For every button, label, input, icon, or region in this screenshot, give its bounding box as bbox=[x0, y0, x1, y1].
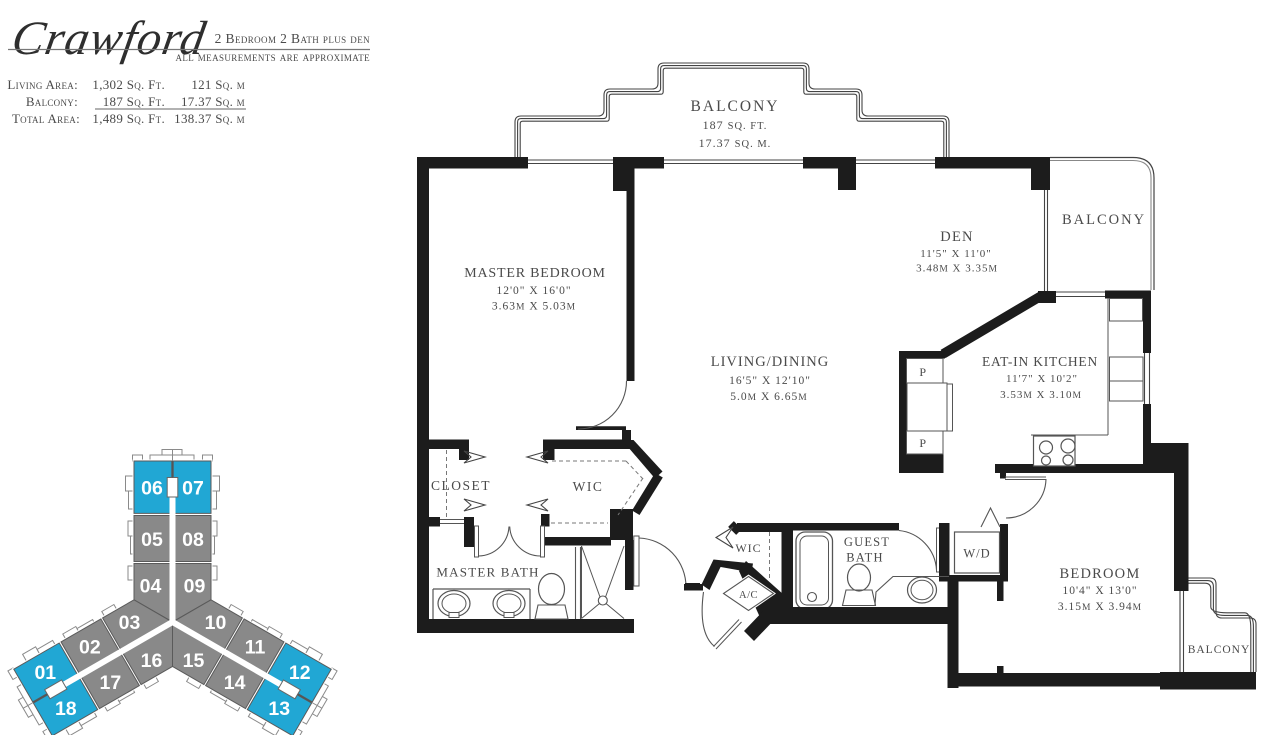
svg-text:BEDROOM: BEDROOM bbox=[1060, 566, 1141, 582]
svg-text:05: 05 bbox=[141, 529, 163, 551]
svg-text:1,489 Sq. Ft.: 1,489 Sq. Ft. bbox=[92, 111, 165, 126]
svg-text:1,302 Sq. Ft.: 1,302 Sq. Ft. bbox=[92, 77, 165, 92]
svg-text:BALCONY: BALCONY bbox=[1062, 212, 1146, 228]
svg-text:11'7" X 10'2": 11'7" X 10'2" bbox=[1006, 373, 1078, 385]
svg-text:17.37 SQ. M.: 17.37 SQ. M. bbox=[699, 136, 772, 150]
svg-text:17.37 Sq. m: 17.37 Sq. m bbox=[181, 94, 245, 109]
svg-text:13: 13 bbox=[268, 698, 290, 720]
svg-text:07: 07 bbox=[182, 478, 204, 500]
svg-text:15: 15 bbox=[183, 650, 205, 672]
svg-text:LIVING/DINING: LIVING/DINING bbox=[711, 354, 830, 370]
svg-text:BATH: BATH bbox=[846, 551, 883, 565]
svg-text:P: P bbox=[919, 365, 926, 379]
svg-text:3.48M X 3.35M: 3.48M X 3.35M bbox=[916, 263, 998, 275]
svg-text:2 Bedroom 2 Bath plus den: 2 Bedroom 2 Bath plus den bbox=[215, 31, 370, 46]
svg-text:all measurements are approxima: all measurements are approximate bbox=[175, 49, 370, 64]
svg-text:CLOSET: CLOSET bbox=[431, 478, 491, 493]
svg-text:187 SQ. FT.: 187 SQ. FT. bbox=[703, 118, 768, 132]
svg-text:3.63M X 5.03M: 3.63M X 5.03M bbox=[492, 301, 576, 313]
svg-text:Living Area:: Living Area: bbox=[7, 77, 78, 92]
svg-text:16'5" X 12'10": 16'5" X 12'10" bbox=[729, 375, 811, 387]
svg-text:14: 14 bbox=[224, 672, 246, 694]
svg-text:03: 03 bbox=[119, 612, 141, 634]
svg-text:WIC: WIC bbox=[735, 541, 761, 555]
svg-text:MASTER BEDROOM: MASTER BEDROOM bbox=[464, 266, 606, 281]
svg-text:Total Area:: Total Area: bbox=[12, 111, 80, 126]
svg-text:P: P bbox=[919, 436, 926, 450]
svg-text:5.0M X 6.65M: 5.0M X 6.65M bbox=[730, 391, 807, 403]
svg-text:GUEST: GUEST bbox=[844, 535, 890, 549]
svg-text:06: 06 bbox=[141, 478, 163, 500]
svg-text:16: 16 bbox=[141, 650, 163, 672]
svg-text:3.53M X 3.10M: 3.53M X 3.10M bbox=[1000, 389, 1082, 401]
svg-text:BALCONY: BALCONY bbox=[691, 98, 780, 115]
svg-text:08: 08 bbox=[182, 529, 204, 551]
svg-text:121 Sq. m: 121 Sq. m bbox=[191, 77, 245, 92]
svg-text:18: 18 bbox=[55, 698, 77, 720]
svg-text:WIC: WIC bbox=[573, 479, 604, 494]
svg-text:A/C: A/C bbox=[739, 590, 758, 601]
svg-text:MASTER BATH: MASTER BATH bbox=[436, 565, 539, 580]
svg-text:11: 11 bbox=[245, 637, 266, 659]
svg-text:W/D: W/D bbox=[963, 547, 990, 561]
svg-text:187 Sq. Ft.: 187 Sq. Ft. bbox=[103, 94, 165, 109]
svg-text:BALCONY: BALCONY bbox=[1188, 644, 1251, 656]
svg-text:Balcony:: Balcony: bbox=[26, 94, 78, 109]
svg-text:09: 09 bbox=[184, 576, 206, 598]
svg-text:04: 04 bbox=[140, 576, 162, 598]
svg-text:11'5" X 11'0": 11'5" X 11'0" bbox=[920, 248, 992, 260]
svg-text:10: 10 bbox=[205, 612, 227, 634]
svg-text:138.37 Sq. m: 138.37 Sq. m bbox=[174, 111, 245, 126]
svg-text:02: 02 bbox=[79, 637, 101, 659]
svg-text:10'4" X 13'0": 10'4" X 13'0" bbox=[1062, 585, 1137, 597]
svg-text:3.15M X 3.94M: 3.15M X 3.94M bbox=[1058, 601, 1142, 613]
svg-text:01: 01 bbox=[34, 662, 56, 684]
svg-text:EAT-IN KITCHEN: EAT-IN KITCHEN bbox=[982, 354, 1098, 369]
svg-text:17: 17 bbox=[100, 672, 122, 694]
svg-text:DEN: DEN bbox=[940, 229, 973, 245]
svg-text:12: 12 bbox=[289, 662, 311, 684]
svg-text:12'0" X 16'0": 12'0" X 16'0" bbox=[496, 285, 571, 297]
